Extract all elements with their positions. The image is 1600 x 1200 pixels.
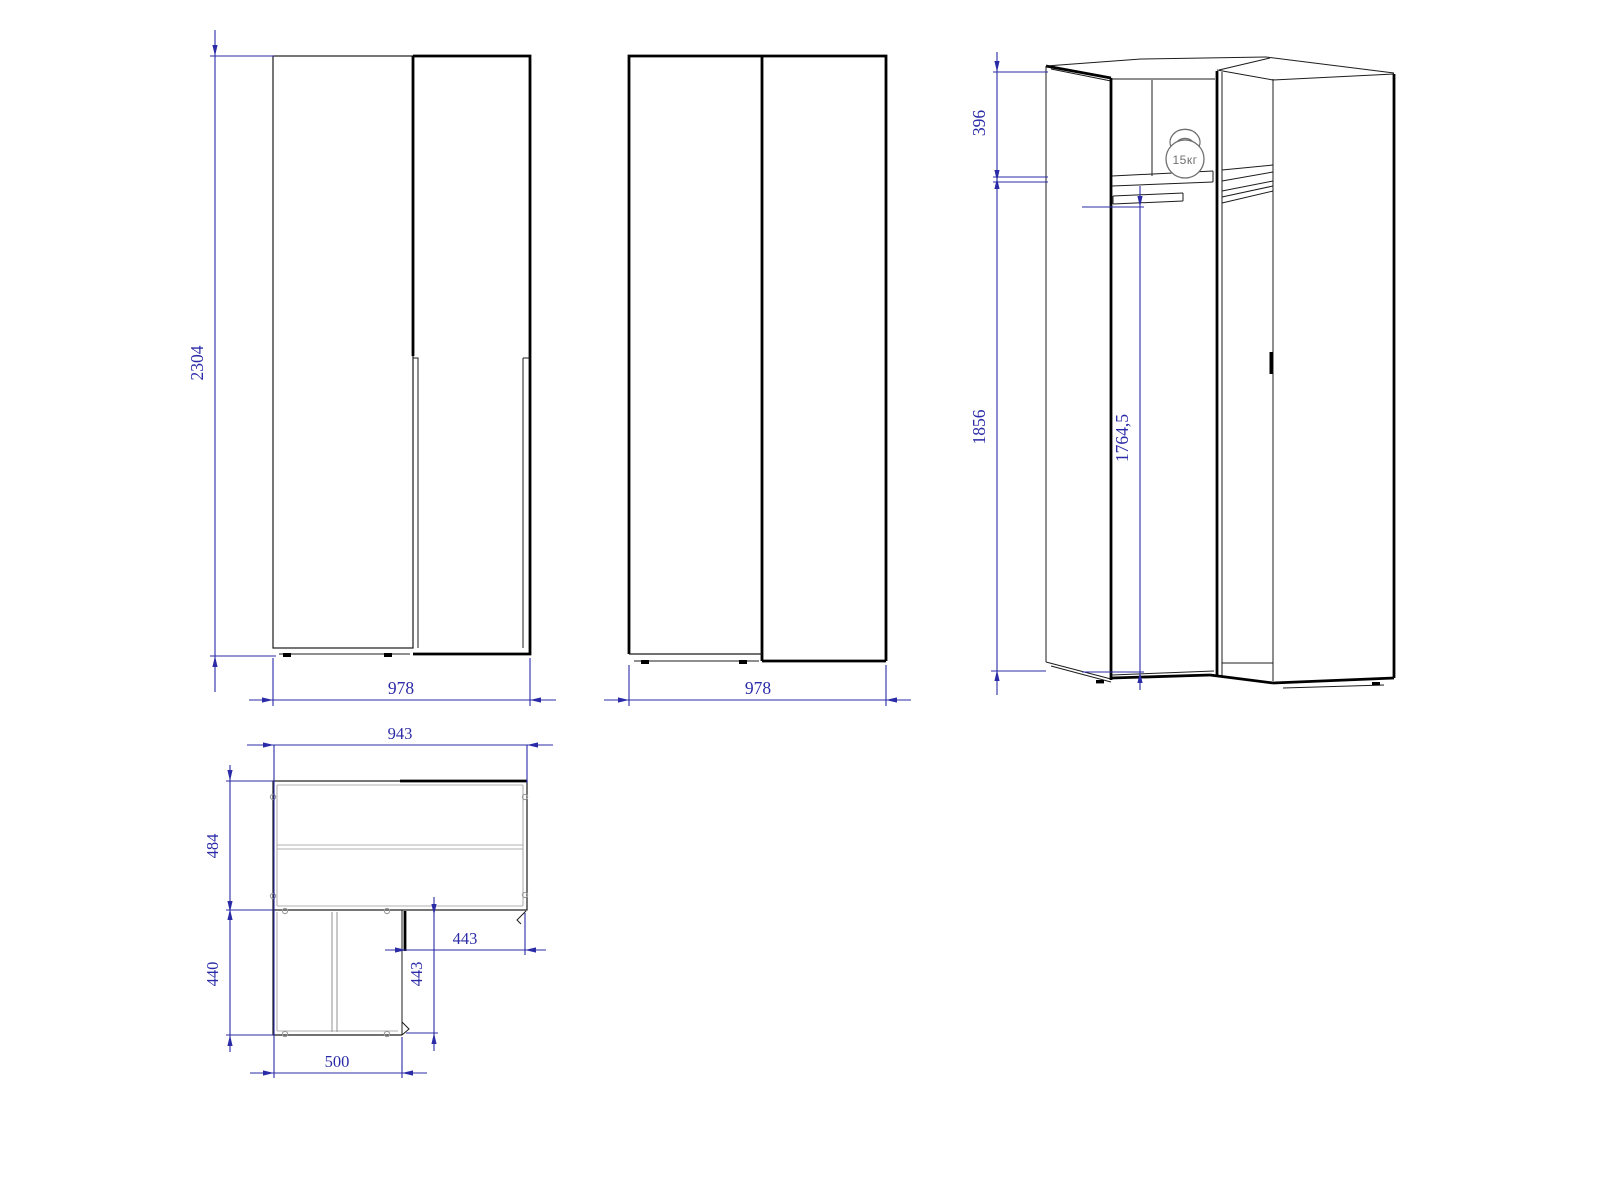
front-b-doors (629, 56, 886, 661)
front-b-foot-tick (739, 660, 747, 664)
front-a-left-door (273, 56, 413, 648)
dim-plan-width: 943 (388, 724, 413, 743)
plan-fitting-marks (270, 794, 527, 1036)
iso-hanger-rod (1113, 193, 1183, 204)
weight-limit-label: 15кг (1173, 153, 1198, 167)
iso-foot-tick (1096, 680, 1104, 683)
front-a-foot-tick (283, 653, 291, 657)
iso-foot-tick (1372, 682, 1380, 685)
front-view-b-dimensions: 978 (604, 665, 911, 706)
drawing-canvas: 2304 978 978 (0, 0, 1600, 1200)
dim-plan-inner-width: 443 (453, 929, 478, 948)
plan-view (270, 781, 527, 1037)
dim-front-a-height: 2304 (187, 345, 207, 380)
iso-door-handle (1270, 352, 1273, 374)
dim-iso-top-section: 396 (969, 110, 989, 137)
plan-lower-leg (273, 910, 526, 1035)
dim-iso-hanging-section: 1856 (969, 409, 989, 444)
front-view-a (273, 56, 530, 657)
dim-front-a-width: 978 (388, 678, 415, 698)
front-view-b (629, 56, 886, 664)
weight-limit-icon: 15кг (1166, 129, 1204, 178)
iso-dimensions: 396 1856 1764,5 (969, 52, 1144, 695)
plan-upper-inner-lines (277, 785, 523, 906)
iso-view: 15кг (1046, 57, 1394, 688)
dim-plan-lower-depth: 440 (203, 962, 222, 987)
front-b-foot-tick (641, 660, 649, 664)
dim-iso-rod-height: 1764,5 (1112, 414, 1132, 462)
iso-partition (1217, 71, 1222, 677)
front-a-right-door (413, 56, 530, 654)
front-a-handle-grooves (413, 358, 530, 648)
dim-plan-inner-depth: 443 (407, 962, 426, 987)
iso-right-compartment (1222, 74, 1394, 681)
dim-plan-lower-width: 500 (325, 1052, 350, 1071)
dim-plan-upper-depth: 484 (203, 834, 222, 859)
dim-front-b-width: 978 (745, 678, 772, 698)
technical-drawing-page: 2304 978 978 (0, 0, 1600, 1200)
front-a-foot-tick (384, 653, 392, 657)
iso-open-door (1046, 66, 1111, 682)
front-view-a-dimensions: 2304 978 (187, 30, 556, 706)
plan-dimensions: 943 484 440 500 443 443 (203, 724, 553, 1078)
